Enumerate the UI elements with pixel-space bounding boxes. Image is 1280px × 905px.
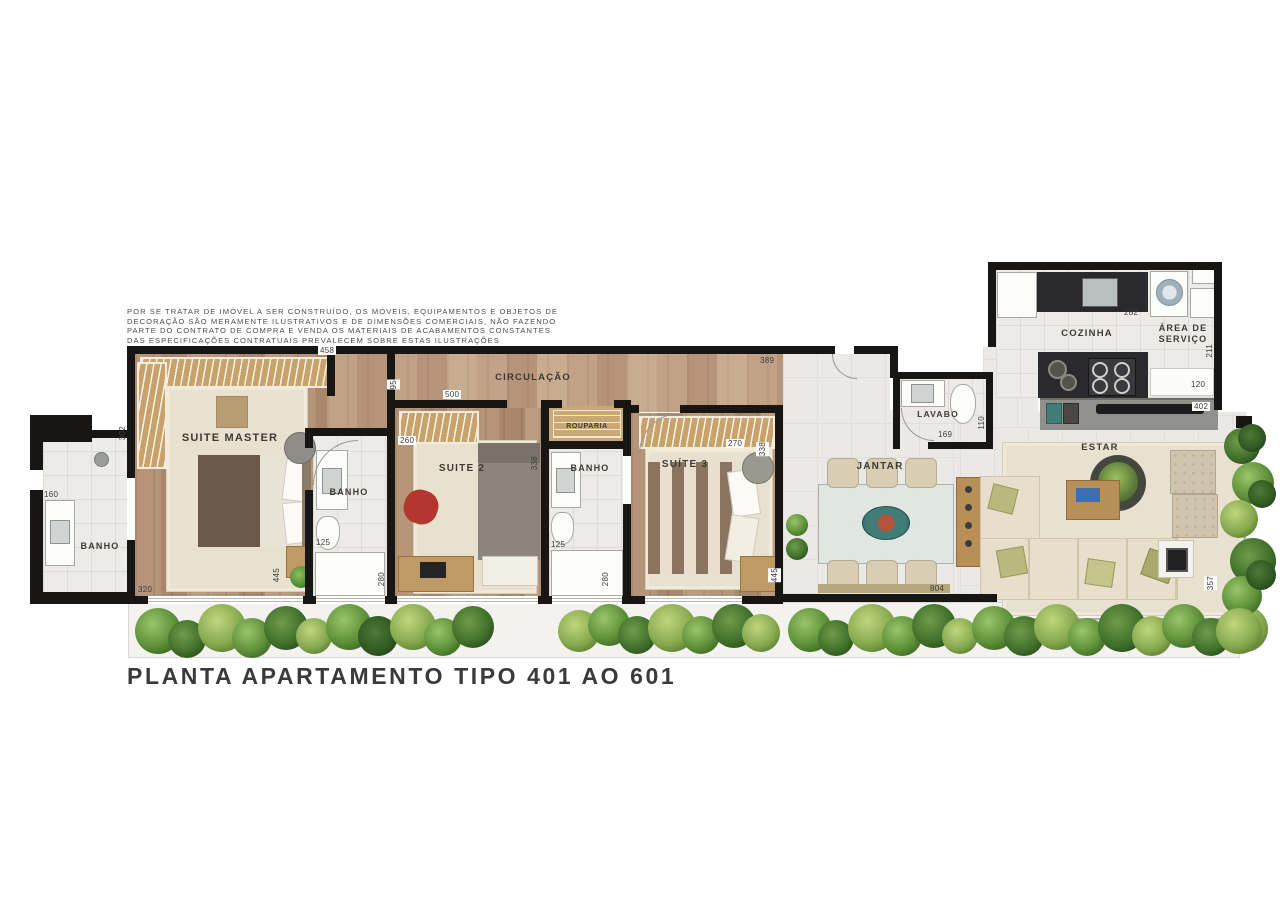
disclaimer-line: DAS ESPECIFICAÇÕES CONTRATUAIS PREVALECE… xyxy=(127,336,558,346)
plant xyxy=(1220,500,1258,538)
plant xyxy=(742,614,780,652)
disclaimer: POR SE TRATAR DE IMÓVEL A SER CONSTRUÍDO… xyxy=(127,307,558,345)
plant xyxy=(1216,608,1262,654)
plant xyxy=(1238,424,1266,452)
disclaimer-line: POR SE TRATAR DE IMÓVEL A SER CONSTRUÍDO… xyxy=(127,307,558,317)
page-title: PLANTA APARTAMENTO TIPO 401 AO 601 xyxy=(127,663,676,690)
greenery xyxy=(0,0,1280,905)
plant xyxy=(1248,480,1276,508)
floor-plan: BANHO SUITE MASTER BANHO SUITE 2 CIRCULA… xyxy=(0,0,1280,905)
disclaimer-line: PARTE DO CONTRATO DE COMPRA E VENDA OS M… xyxy=(127,326,558,336)
disclaimer-line: DECORAÇÃO SÃO MERAMENTE ILUSTRATIVOS E D… xyxy=(127,317,558,327)
plant xyxy=(452,606,494,648)
plant xyxy=(1246,560,1276,590)
